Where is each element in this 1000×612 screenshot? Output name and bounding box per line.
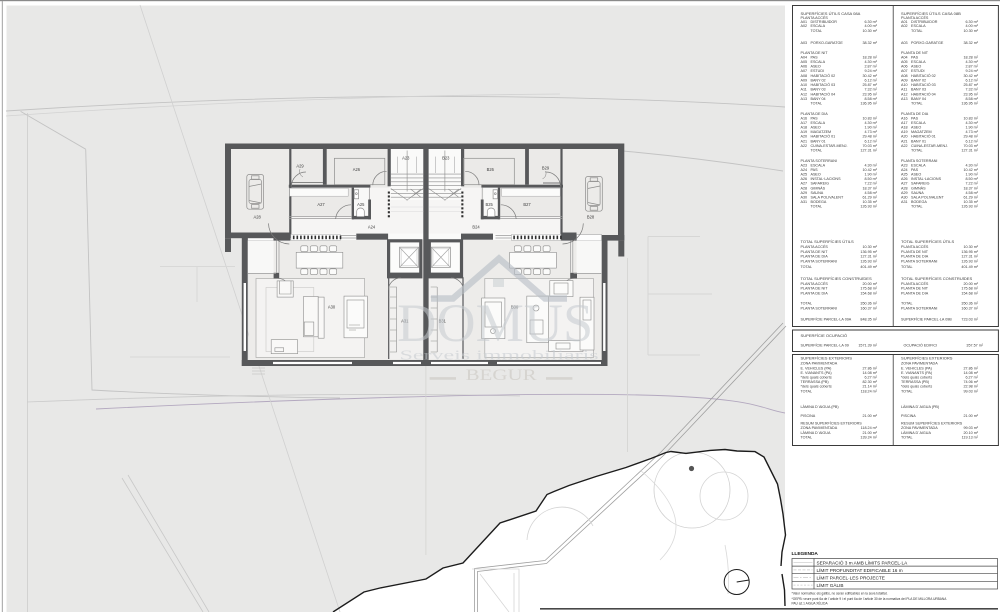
svg-text:A22CUINA-ESTAR-MENJ.70.03 m²: A22CUINA-ESTAR-MENJ.70.03 m² <box>901 144 979 148</box>
svg-text:A03PORXO-GARATGE38.32 m²: A03PORXO-GARATGE38.32 m² <box>801 41 878 45</box>
svg-text:*OEPB: veure punt 6a de l´arti: *OEPB: veure punt 6a de l´article 9 i el… <box>792 597 948 601</box>
svg-text:LÍMIT PROFUNDITAT EDIFICABLE 1: LÍMIT PROFUNDITAT EDIFICABLE 16 m <box>817 567 903 573</box>
svg-text:A30: A30 <box>328 305 336 310</box>
svg-text:SUPERFÍCIES EXTERIORS: SUPERFÍCIES EXTERIORS <box>901 355 953 360</box>
svg-text:RESUM SUPERFÍCIES EXTERIORS: RESUM SUPERFÍCIES EXTERIORS <box>801 421 863 425</box>
svg-text:A30SALA POLIVALENT61.29 m²: A30SALA POLIVALENT61.29 m² <box>901 195 979 199</box>
svg-text:TOTAL SUPERFÍCIES ÚTILS: TOTAL SUPERFÍCIES ÚTILS <box>901 239 955 244</box>
svg-text:SUPERFÍCIE PARCEL·LA 09B723.03: SUPERFÍCIE PARCEL·LA 09B723.03 m² <box>901 317 979 321</box>
svg-text:RESUM SUPERFÍCIES EXTERIORS: RESUM SUPERFÍCIES EXTERIORS <box>901 421 963 425</box>
svg-text:TOTAL SUPERFÍCIES CONSTRUÏDES: TOTAL SUPERFÍCIES CONSTRUÏDES <box>901 276 973 281</box>
svg-text:SUPERFÍCIES EXTERIORS: SUPERFÍCIES EXTERIORS <box>801 355 853 360</box>
svg-text:PLANTA DE NIT: PLANTA DE NIT <box>801 51 829 55</box>
svg-text:A03PORXO-GARATGE38.32 m²: A03PORXO-GARATGE38.32 m² <box>901 41 979 45</box>
svg-text:A23: A23 <box>402 155 410 160</box>
svg-text:PLANTA SOTERRANI: PLANTA SOTERRANI <box>901 159 937 163</box>
svg-text:A26INSTAL·LACIONS8.50 m²: A26INSTAL·LACIONS8.50 m² <box>801 177 878 181</box>
svg-text:B24: B24 <box>472 225 480 230</box>
svg-text:BEGUR: BEGUR <box>466 367 538 384</box>
svg-text:A30SALA POLIVALENT61.29 m²: A30SALA POLIVALENT61.29 m² <box>801 195 878 199</box>
svg-text:*Valor normativa: els gàlibs,: *Valor normativa: els gàlibs, no seran e… <box>792 592 888 596</box>
svg-text:A26: A26 <box>353 167 361 172</box>
svg-text:LÍMIT GÀLIB: LÍMIT GÀLIB <box>817 582 844 588</box>
svg-text:A28: A28 <box>254 214 262 219</box>
svg-text:TOTAL SUPERFÍCIES CONSTRUÏDES: TOTAL SUPERFÍCIES CONSTRUÏDES <box>801 276 873 281</box>
svg-text:B29: B29 <box>542 166 550 171</box>
svg-text:TOTAL SUPERFÍCIES ÚTILS: TOTAL SUPERFÍCIES ÚTILS <box>801 239 855 244</box>
svg-text:LÍMIT PARCEL·LES PROJECTE: LÍMIT PARCEL·LES PROJECTE <box>817 575 885 581</box>
svg-text:SUPERFÍCIE OCUPACIÓ: SUPERFÍCIE OCUPACIÓ <box>801 333 848 338</box>
svg-text:B26: B26 <box>487 167 495 172</box>
svg-text:ZONA PAVIMENTADA: ZONA PAVIMENTADA <box>801 362 838 366</box>
svg-text:PLANTA DE NIT: PLANTA DE NIT <box>901 51 929 55</box>
svg-text:A24: A24 <box>368 225 376 230</box>
svg-text:A27: A27 <box>317 202 325 207</box>
svg-text:A25: A25 <box>357 202 365 207</box>
svg-text:SEPARACIÓ 3 m AMB LÍMITS PARCE: SEPARACIÓ 3 m AMB LÍMITS PARCEL·LA <box>817 559 909 565</box>
svg-text:DOMUS: DOMUS <box>397 293 593 353</box>
svg-text:A22CUINA-ESTAR-MENJ.70.03 m²: A22CUINA-ESTAR-MENJ.70.03 m² <box>801 144 878 148</box>
svg-text:Serveis immobiliaris: Serveis immobiliaris <box>400 349 599 364</box>
svg-text:B23: B23 <box>442 155 450 160</box>
svg-text:B27: B27 <box>523 202 531 207</box>
svg-text:LÀMINA D´AIGUA (PB): LÀMINA D´AIGUA (PB) <box>901 405 939 409</box>
svg-text:LLEGENDA: LLEGENDA <box>792 551 819 557</box>
svg-text:PLANTA DE DIA: PLANTA DE DIA <box>901 112 929 116</box>
svg-text:B25: B25 <box>486 202 494 207</box>
svg-text:A26INSTAL·LACIONS8.50 m²: A26INSTAL·LACIONS8.50 m² <box>901 177 979 181</box>
svg-text:PLANTA DE DIA: PLANTA DE DIA <box>801 112 829 116</box>
svg-text:LÀMINA D´AIGUA (PB): LÀMINA D´AIGUA (PB) <box>801 405 839 409</box>
svg-text:ZONA PAVIMENTADA: ZONA PAVIMENTADA <box>901 362 938 366</box>
svg-text:PLANTA SOTERRANI: PLANTA SOTERRANI <box>801 159 837 163</box>
svg-text:A29: A29 <box>296 164 304 169</box>
svg-text:B28: B28 <box>587 214 595 219</box>
svg-text:SUPERFÍCIE PARCEL·LA 09A848.35: SUPERFÍCIE PARCEL·LA 09A848.35 m² <box>801 317 878 321</box>
svg-text:SUPERFÍCIE PARCEL·LA 091571.39: SUPERFÍCIE PARCEL·LA 091571.39 m² <box>801 344 878 348</box>
svg-text:PAU a2.1 AIGUA XÈLIDA: PAU a2.1 AIGUA XÈLIDA <box>792 601 829 606</box>
